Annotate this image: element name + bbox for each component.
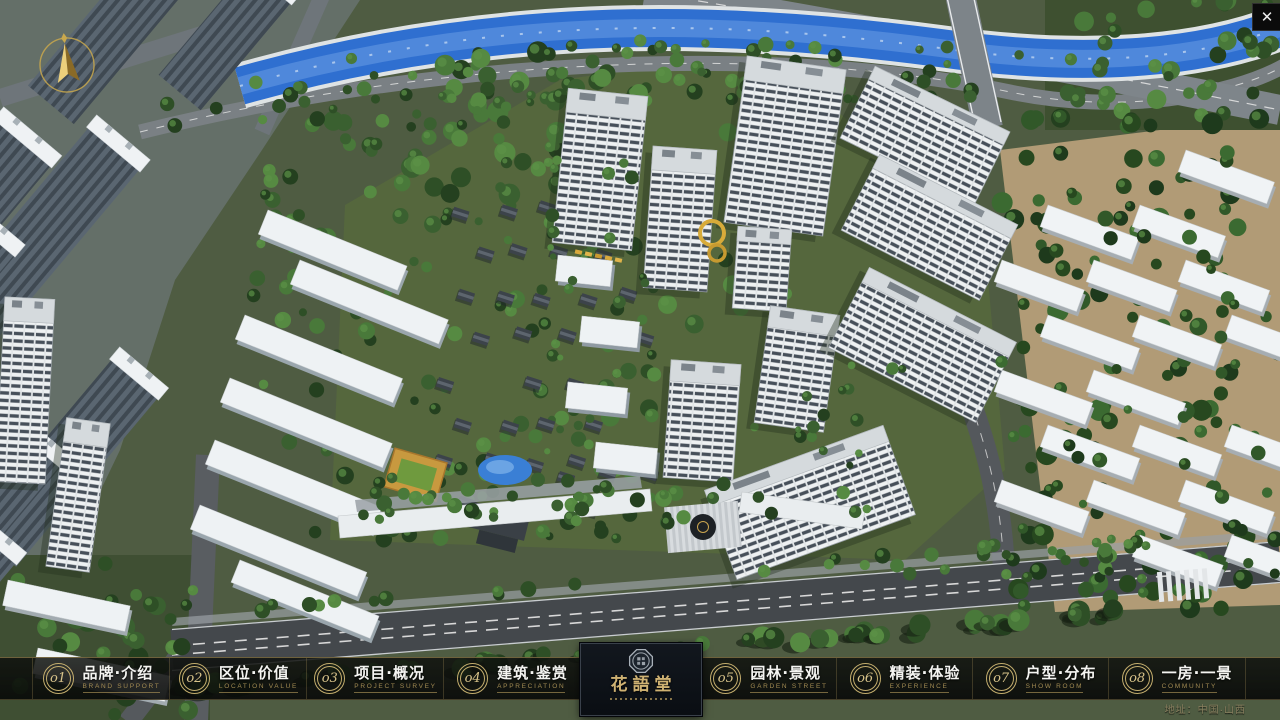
nav-label: 项目·概况 <box>354 665 425 681</box>
close-button[interactable]: ✕ <box>1252 3 1280 31</box>
nav-sublabel: BRAND SUPPORT <box>83 683 161 693</box>
address-text: 地址：中国·山西 <box>1165 701 1246 716</box>
scene-3d-aerial-view[interactable] <box>0 0 1280 720</box>
nav-number-badge: o3 <box>314 663 345 694</box>
nav-sublabel: GARDEN STREET <box>750 683 827 693</box>
close-icon: ✕ <box>1261 8 1274 26</box>
nav-label: 一房·一景 <box>1162 665 1233 681</box>
nav-number-badge: o1 <box>43 663 74 694</box>
nav-item-interior-experience[interactable]: o6 精装·体验 EXPERIENCE <box>836 658 973 699</box>
nav-item-location-value[interactable]: o2 区位·价值 LOCATION VALUE <box>169 658 307 699</box>
entrance-gate <box>690 514 716 540</box>
app-window: ✕ o1 品牌·介绍 BRAND SUPPORT o2 区位·价值 LOCATI… <box>0 0 1280 720</box>
nav-number-badge: o2 <box>179 663 210 694</box>
nav-item-floorplan-distribution[interactable]: o7 户型·分布 SHOW ROOM <box>972 658 1109 699</box>
nav-number-badge: o6 <box>850 663 881 694</box>
logo-home-button[interactable]: 花語堂 <box>580 643 702 716</box>
nav-label: 品牌·介绍 <box>83 665 154 681</box>
nav-label: 区位·价值 <box>219 665 290 681</box>
nav-number-badge: o8 <box>1122 663 1153 694</box>
nav-sublabel: PROJECT SURVEY <box>354 683 436 693</box>
nav-item-room-view[interactable]: o8 一房·一景 COMMUNITY <box>1108 658 1246 699</box>
nav-sublabel: SHOW ROOM <box>1026 683 1084 693</box>
nav-label: 建筑·鉴赏 <box>497 665 568 681</box>
nav-label: 户型·分布 <box>1026 665 1097 681</box>
nav-sublabel: APPRECIATION <box>497 683 565 693</box>
nav-sublabel: COMMUNITY <box>1162 683 1217 693</box>
nav-number-badge: o5 <box>710 663 741 694</box>
nav-label: 精装·体验 <box>890 665 961 681</box>
logo-tagline-line <box>610 698 672 700</box>
logo-name: 花語堂 <box>606 675 677 695</box>
nav-number-badge: o7 <box>986 663 1017 694</box>
nav-item-project-survey[interactable]: o3 项目·概况 PROJECT SURVEY <box>306 658 444 699</box>
nav-item-garden-landscape[interactable]: o5 园林·景观 GARDEN STREET <box>700 658 837 699</box>
nav-sublabel: EXPERIENCE <box>890 683 949 693</box>
nav-sublabel: LOCATION VALUE <box>219 683 298 693</box>
nav-item-architecture[interactable]: o4 建筑·鉴赏 APPRECIATION <box>443 658 582 699</box>
nav-number-badge: o4 <box>457 663 488 694</box>
nav-item-brand-intro[interactable]: o1 品牌·介绍 BRAND SUPPORT <box>32 658 170 699</box>
logo-seal-icon <box>628 648 654 674</box>
nav-label: 园林·景观 <box>750 665 821 681</box>
